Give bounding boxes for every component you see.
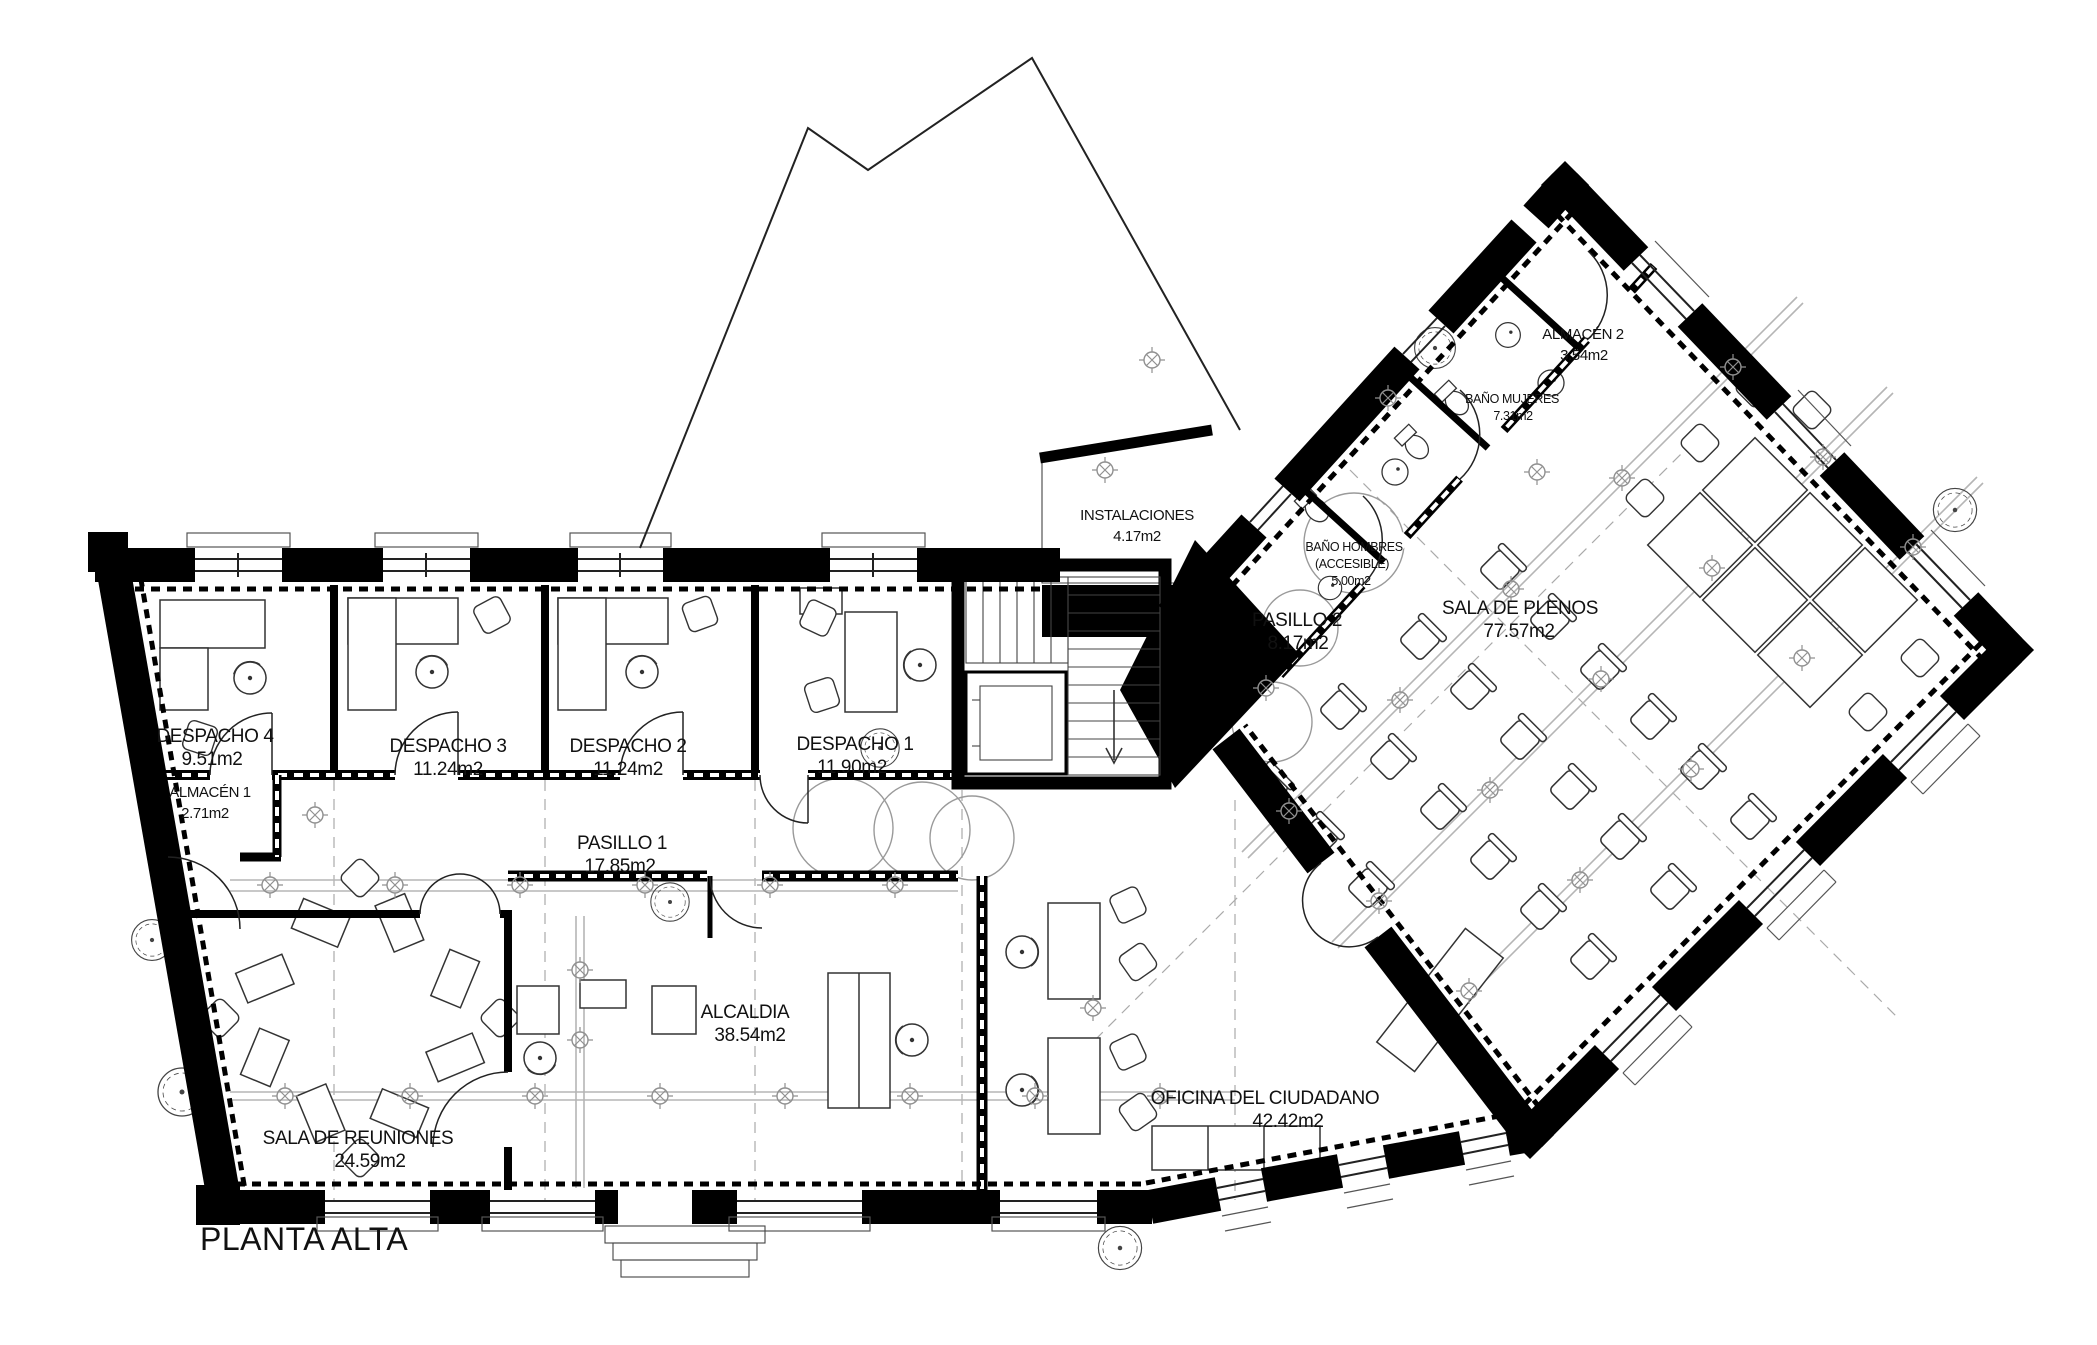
bano-hombres-area: 5.00m2 bbox=[1331, 574, 1371, 588]
despacho4-name: DESPACHO 4 bbox=[156, 726, 274, 747]
bano-hombres-name: BAÑO HOMBRES bbox=[1305, 540, 1402, 554]
corridor-circle bbox=[874, 782, 970, 878]
adjacent-roof-outline bbox=[640, 58, 1240, 548]
despacho1-area: 11.90m2 bbox=[817, 757, 887, 778]
instalaciones-name: INSTALACIONES bbox=[1080, 507, 1194, 524]
floor-plan-sheet: DESPACHO 4 9.51m2 ALMACÉN 1 2.71m2 DESPA… bbox=[0, 0, 2097, 1345]
alcaldia-area: 38.54m2 bbox=[714, 1025, 785, 1046]
label-bano-mujeres: BAÑO MUJERES 7.31m2 bbox=[1465, 392, 1559, 423]
oficina-area: 42.42m2 bbox=[1252, 1111, 1323, 1132]
almacen1-area: 2.71m2 bbox=[181, 805, 229, 822]
label-pasillo-1: PASILLO 1 17.85m2 bbox=[577, 833, 667, 877]
label-bano-hombres: BAÑO HOMBRES (ACCESIBLE) 5.00m2 bbox=[1305, 540, 1402, 588]
almacen2-area: 3.54m2 bbox=[1560, 347, 1608, 364]
despacho2-name: DESPACHO 2 bbox=[569, 736, 686, 757]
sala-plenos-area: 77.57m2 bbox=[1483, 621, 1554, 642]
bano-mujeres-area: 7.31m2 bbox=[1493, 409, 1533, 423]
sala-plenos-name: SALA DE PLENOS bbox=[1442, 598, 1598, 619]
desk-despacho-3 bbox=[348, 595, 512, 710]
despacho2-area: 11.24m2 bbox=[593, 759, 663, 780]
elevator bbox=[966, 672, 1066, 774]
sala-reuniones-area: 24.59m2 bbox=[334, 1151, 405, 1172]
oficina-furniture bbox=[1006, 885, 1503, 1270]
almacen2-name: ALMACÉN 2 bbox=[1542, 326, 1623, 343]
bano-mujeres-name: BAÑO MUJERES bbox=[1465, 392, 1559, 406]
pasillo1-name: PASILLO 1 bbox=[577, 833, 667, 854]
sala-reuniones-name: SALA DE REUNIONES bbox=[263, 1128, 454, 1149]
floor-plan-drawing: DESPACHO 4 9.51m2 ALMACÉN 1 2.71m2 DESPA… bbox=[0, 0, 2097, 1345]
despacho3-name: DESPACHO 3 bbox=[389, 736, 506, 757]
despacho4-area: 9.51m2 bbox=[182, 749, 243, 770]
despacho3-area: 11.24m2 bbox=[413, 759, 483, 780]
despacho1-name: DESPACHO 1 bbox=[796, 734, 913, 755]
entrance-steps bbox=[605, 1226, 765, 1277]
pasillo1-area: 17.85m2 bbox=[584, 856, 655, 877]
alcaldia-name: ALCALDIA bbox=[701, 1002, 790, 1023]
stair-down-arrow bbox=[1106, 690, 1122, 763]
almacen1-name: ALMACÉN 1 bbox=[169, 784, 250, 801]
pasillo2-name: PASILLO 2 bbox=[1252, 610, 1342, 631]
oficina-name: OFICINA DEL CIUDADANO bbox=[1151, 1088, 1379, 1109]
corridor-circle bbox=[930, 796, 1014, 880]
alcaldia-furniture bbox=[517, 883, 928, 1108]
bano-hombres-qualifier: (ACCESIBLE) bbox=[1315, 557, 1389, 571]
label-alcaldia: ALCALDIA 38.54m2 bbox=[701, 1002, 790, 1046]
plan-title: PLANTA ALTA bbox=[200, 1221, 408, 1257]
desk-despacho-2 bbox=[558, 595, 719, 710]
label-instalaciones: INSTALACIONES 4.17m2 bbox=[1080, 507, 1194, 545]
pasillo2-area: 8.17m2 bbox=[1268, 633, 1329, 654]
instalaciones-area: 4.17m2 bbox=[1113, 528, 1161, 545]
